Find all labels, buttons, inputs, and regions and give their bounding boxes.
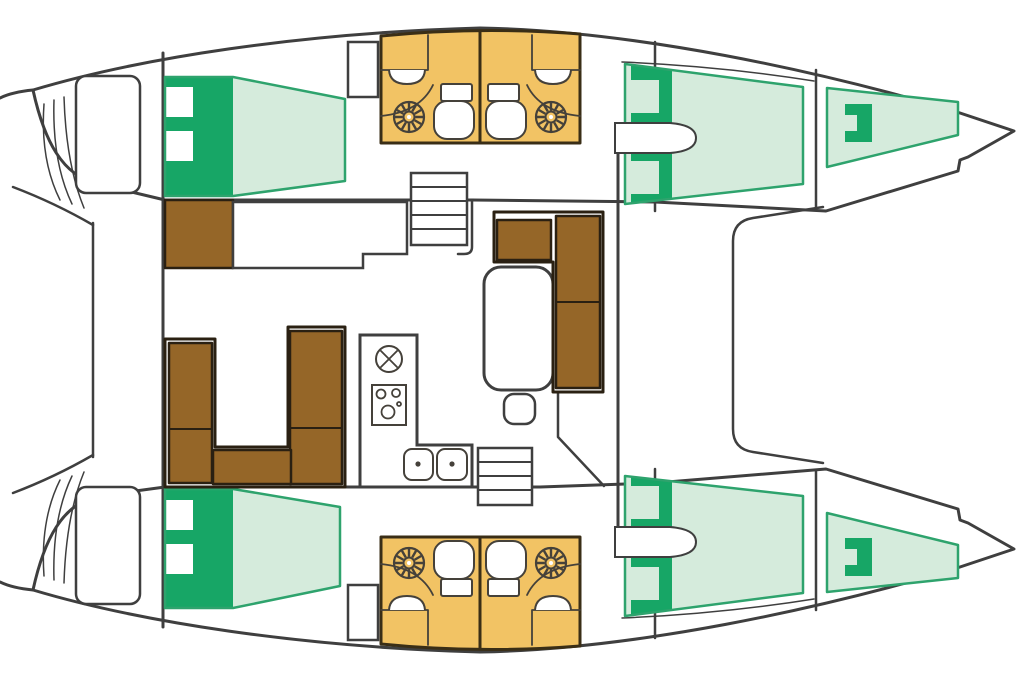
vanity-sink-icon (389, 70, 425, 84)
companionway-stairs-bottom (478, 448, 532, 505)
shower-fan-icon (536, 102, 566, 132)
catamaran-floor-plan (0, 0, 1024, 680)
sink-drain (415, 461, 420, 466)
stool (504, 394, 535, 424)
forward-cabin-berth-top (615, 64, 803, 204)
sink-drain (449, 461, 454, 466)
aft-cabin-berth-bottom (164, 489, 340, 608)
shower-fan-icon (394, 548, 424, 578)
toilet-icon (434, 101, 474, 139)
pillow-notch (631, 161, 659, 194)
toilet-tank (488, 579, 519, 596)
pillow-notch (164, 131, 193, 161)
sideboard-counter (233, 202, 407, 268)
toilet-tank (441, 84, 472, 101)
pillow-notch (164, 500, 193, 530)
forward-cabin-berth-bottom (615, 476, 803, 616)
dining-table (484, 267, 553, 390)
u-sofa-seat (213, 450, 291, 484)
wardrobe-top (348, 42, 378, 97)
vanity-sink-icon (389, 596, 425, 610)
shower-fan-icon (536, 548, 566, 578)
companionway-wall-bottom (558, 392, 604, 486)
pillow-notch (631, 486, 659, 519)
berth-entry-recess (615, 527, 696, 557)
shower-fan-icon (394, 102, 424, 132)
galley (360, 335, 472, 487)
u-sofa-cushion-line (169, 428, 342, 429)
heads-top (381, 30, 580, 143)
pillow-notch (164, 544, 193, 574)
top-stern-cut (0, 90, 33, 98)
vanity-sink-icon (535, 596, 571, 610)
wardrobe-bottom (348, 585, 378, 640)
u-sofa (165, 327, 345, 487)
bottom-transom-platform (76, 487, 140, 604)
toilet-tank (488, 84, 519, 101)
pillow-notch (845, 549, 857, 565)
top-transom-platform (76, 76, 140, 193)
pillow-notch (164, 87, 193, 117)
toilet-tank (441, 579, 472, 596)
berth-entry-recess (615, 123, 696, 153)
pillow-notch (845, 115, 857, 131)
toilet-icon (486, 541, 526, 579)
heads-bottom (381, 537, 580, 650)
bottom-stern-cut (0, 582, 33, 590)
floor-plan-svg (0, 0, 1024, 680)
stern-details (0, 76, 140, 604)
toilet-icon (486, 101, 526, 139)
pillow-notch (631, 567, 659, 600)
aft-cabin-berth-top (164, 77, 345, 196)
trampoline (733, 207, 823, 463)
u-sofa-seat (290, 331, 342, 484)
companionway-stairs-top (411, 173, 467, 245)
toilet-icon (434, 541, 474, 579)
pillow-notch (631, 80, 659, 113)
nav-seat (165, 200, 233, 268)
l-sofa-seat (497, 220, 551, 260)
u-sofa-seat (169, 343, 212, 483)
salon (165, 200, 603, 487)
vanity-sink-icon (535, 70, 571, 84)
stairs-box (411, 173, 467, 245)
